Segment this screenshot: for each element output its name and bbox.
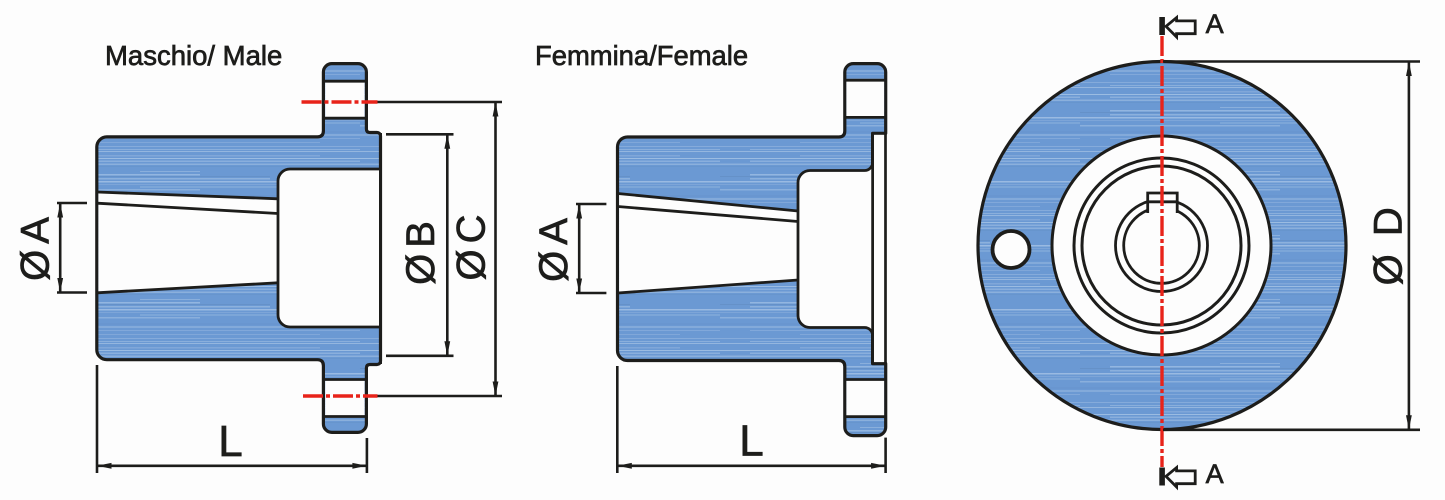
svg-text:L: L xyxy=(739,417,763,466)
svg-text:ØA: ØA xyxy=(14,211,58,281)
svg-text:ØC: ØC xyxy=(450,209,494,281)
svg-text:Maschio/ Male: Maschio/ Male xyxy=(105,40,282,71)
svg-text:Femmina/Female: Femmina/Female xyxy=(535,40,748,71)
svg-text:L: L xyxy=(218,417,242,466)
svg-text:ØB: ØB xyxy=(399,215,443,285)
svg-text:ØA: ØA xyxy=(532,212,576,282)
svg-text:Ø D: Ø D xyxy=(1367,204,1411,286)
svg-text:A: A xyxy=(1206,9,1224,39)
svg-text:A: A xyxy=(1206,459,1224,489)
